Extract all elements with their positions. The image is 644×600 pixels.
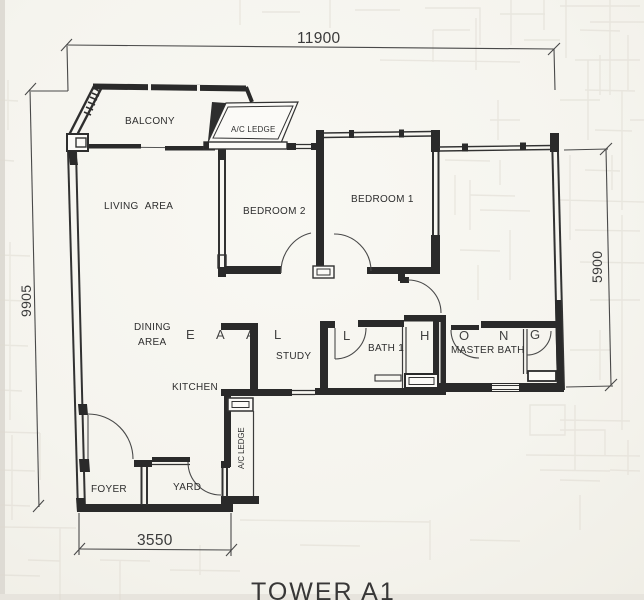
svg-text:TOWER A1: TOWER A1: [251, 578, 396, 600]
svg-text:BALCONY: BALCONY: [125, 116, 175, 127]
svg-text:FOYER: FOYER: [91, 484, 127, 495]
svg-text:5900: 5900: [589, 251, 605, 283]
svg-text:A/C LEDGE: A/C LEDGE: [231, 125, 275, 134]
svg-text:N: N: [499, 328, 508, 343]
svg-text:E: E: [186, 327, 195, 342]
svg-text:L: L: [274, 327, 281, 342]
svg-text:O: O: [459, 328, 469, 343]
svg-text:MASTER BATH: MASTER BATH: [451, 345, 525, 356]
svg-text:G: G: [530, 327, 540, 342]
svg-text:LIVING AREA: LIVING AREA: [104, 201, 173, 212]
svg-text:BATH 1: BATH 1: [368, 343, 404, 354]
svg-text:DINING: DINING: [134, 322, 171, 333]
svg-text:H: H: [420, 328, 429, 343]
svg-text:BEDROOM 2: BEDROOM 2: [243, 206, 306, 217]
svg-text:L: L: [343, 328, 350, 343]
svg-text:AREA: AREA: [138, 337, 166, 348]
svg-text:11900: 11900: [297, 30, 341, 47]
svg-text:STUDY: STUDY: [276, 351, 311, 362]
svg-text:BEDROOM 1: BEDROOM 1: [351, 194, 414, 205]
svg-text:9905: 9905: [18, 285, 34, 317]
svg-text:A/C LEDGE: A/C LEDGE: [237, 427, 246, 469]
svg-text:YARD: YARD: [173, 482, 201, 493]
svg-text:KITCHEN: KITCHEN: [172, 382, 218, 393]
svg-text:3550: 3550: [137, 532, 173, 549]
